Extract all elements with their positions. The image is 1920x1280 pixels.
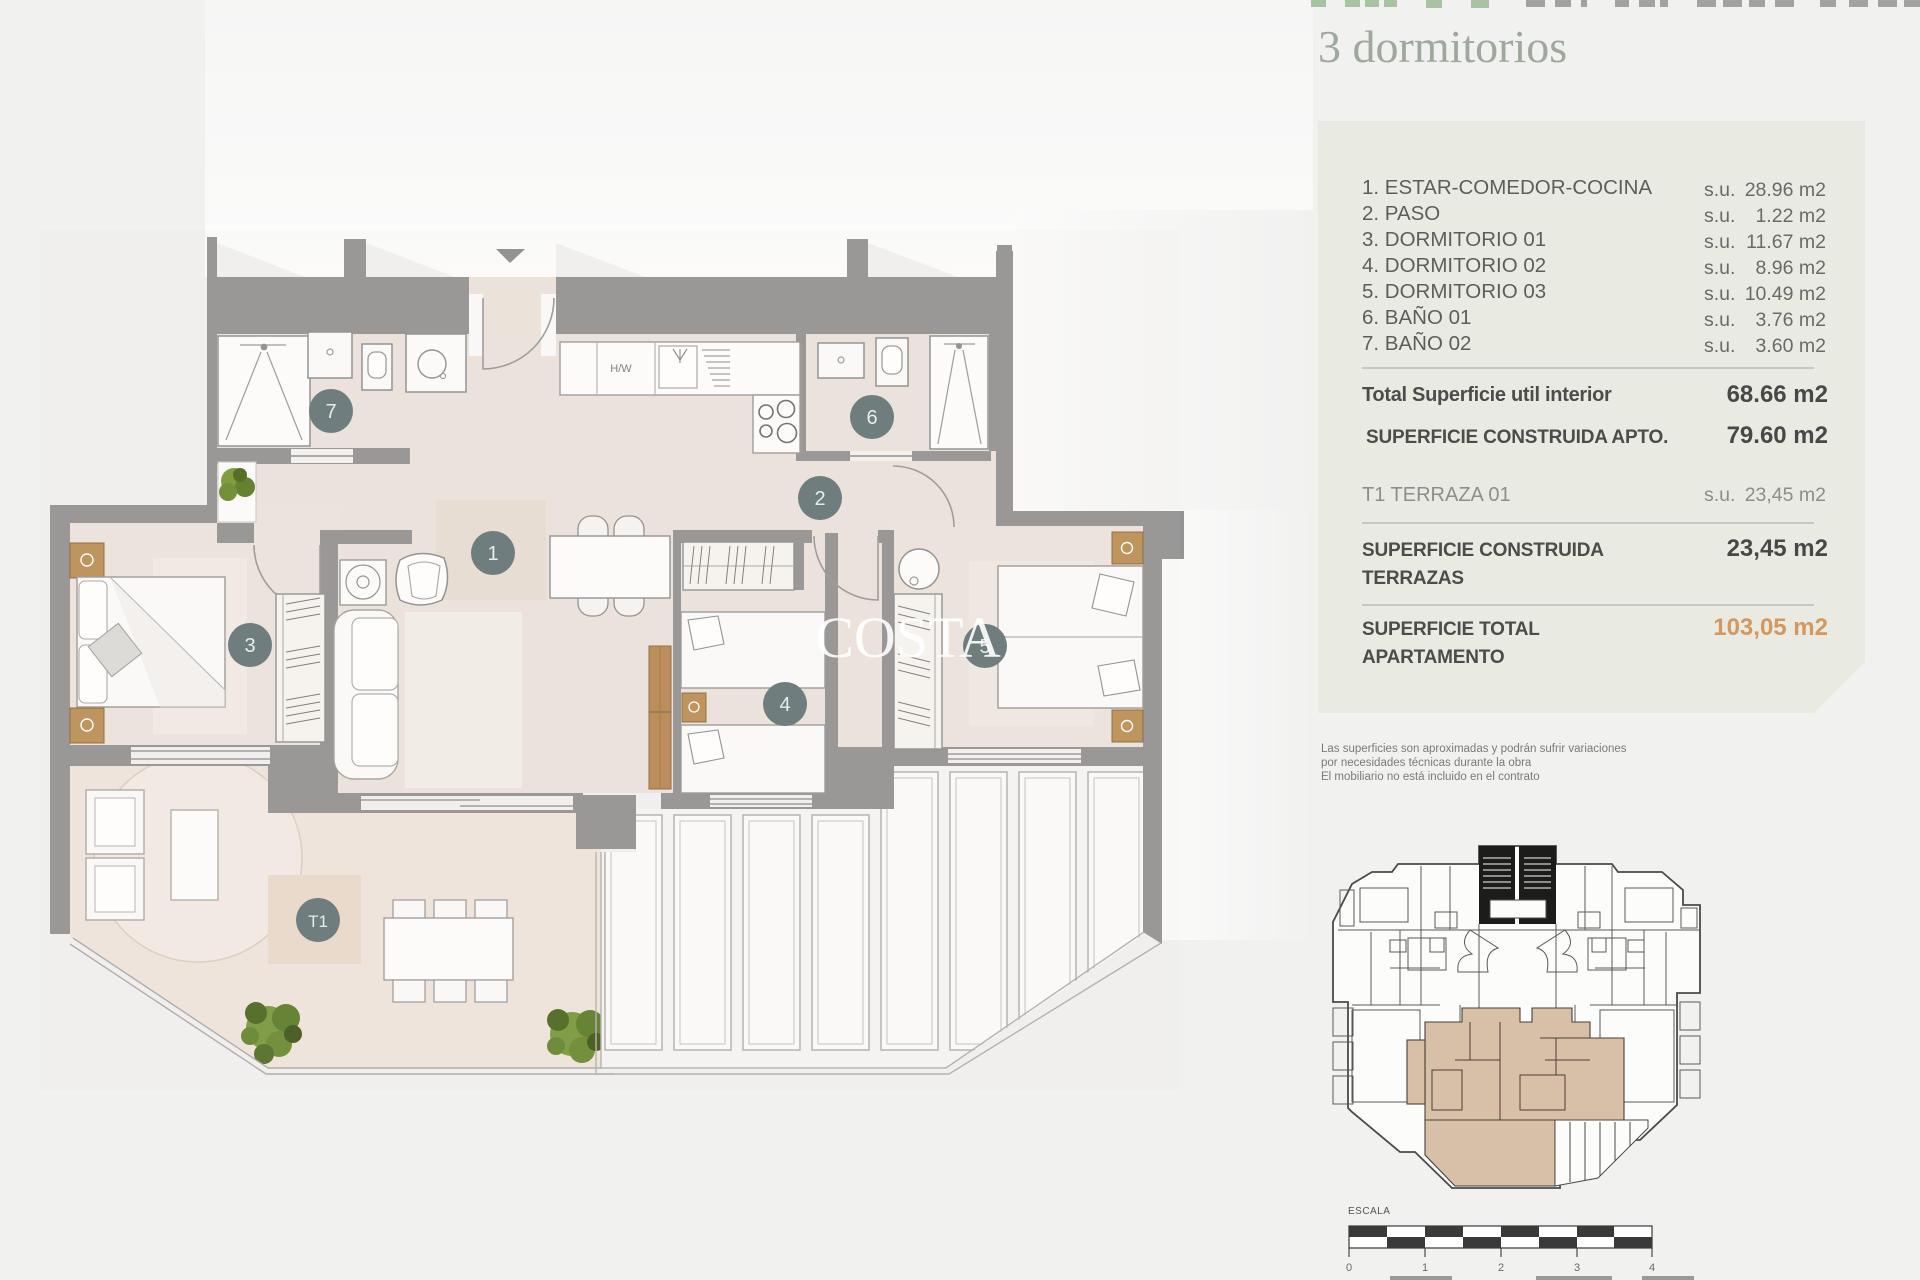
svg-text:6. BAÑO 01: 6. BAÑO 01 bbox=[1362, 306, 1471, 329]
svg-text:103,05 m2: 103,05 m2 bbox=[1713, 614, 1828, 641]
svg-text:28.96 m2: 28.96 m2 bbox=[1745, 179, 1826, 201]
svg-text:3.76 m2: 3.76 m2 bbox=[1756, 309, 1826, 331]
svg-text:6: 6 bbox=[866, 407, 877, 429]
svg-text:s.u.: s.u. bbox=[1704, 205, 1735, 227]
svg-text:por necesidades técnicas duran: por necesidades técnicas durante la obra bbox=[1321, 757, 1532, 769]
svg-text:s.u.: s.u. bbox=[1704, 231, 1735, 253]
svg-text:1: 1 bbox=[487, 543, 498, 565]
svg-text:COSTA: COSTA bbox=[815, 605, 1001, 670]
svg-text:5. DORMITORIO 03: 5. DORMITORIO 03 bbox=[1362, 280, 1546, 303]
svg-text:APARTAMENTO: APARTAMENTO bbox=[1362, 647, 1504, 668]
svg-text:68.66 m2: 68.66 m2 bbox=[1727, 381, 1828, 408]
svg-text:3 dormitorios: 3 dormitorios bbox=[1318, 21, 1567, 72]
svg-text:Total Superficie util interior: Total Superficie util interior bbox=[1362, 384, 1612, 406]
svg-text:2. PASO: 2. PASO bbox=[1362, 202, 1440, 225]
svg-text:1. ESTAR-COMEDOR-COCINA: 1. ESTAR-COMEDOR-COCINA bbox=[1362, 176, 1652, 199]
svg-text:T1 TERRAZA 01: T1 TERRAZA 01 bbox=[1362, 484, 1511, 506]
svg-text:79.60 m2: 79.60 m2 bbox=[1727, 422, 1828, 449]
svg-text:s.u.: s.u. bbox=[1704, 257, 1735, 279]
svg-text:SUPERFICIE CONSTRUIDA: SUPERFICIE CONSTRUIDA bbox=[1362, 540, 1604, 561]
svg-text:1.22 m2: 1.22 m2 bbox=[1756, 205, 1826, 227]
svg-text:SUPERFICIE CONSTRUIDA APTO.: SUPERFICIE CONSTRUIDA APTO. bbox=[1366, 427, 1668, 448]
svg-text:3: 3 bbox=[244, 635, 255, 657]
svg-text:3.60 m2: 3.60 m2 bbox=[1756, 335, 1826, 357]
svg-text:4. DORMITORIO 02: 4. DORMITORIO 02 bbox=[1362, 254, 1546, 277]
svg-text:Las superficies son aproximada: Las superficies son aproximadas y podrán… bbox=[1321, 743, 1627, 755]
svg-text:s.u.: s.u. bbox=[1704, 335, 1735, 357]
svg-text:s.u.: s.u. bbox=[1704, 283, 1735, 305]
svg-text:0: 0 bbox=[1346, 1262, 1352, 1274]
svg-text:El mobiliario no está incluido: El mobiliario no está incluido en el con… bbox=[1321, 771, 1540, 783]
svg-text:TERRAZAS: TERRAZAS bbox=[1362, 568, 1464, 589]
svg-text:1: 1 bbox=[1422, 1262, 1428, 1274]
svg-text:s.u.: s.u. bbox=[1704, 309, 1735, 331]
svg-text:3. DORMITORIO 01: 3. DORMITORIO 01 bbox=[1362, 228, 1546, 251]
svg-text:SUPERFICIE TOTAL: SUPERFICIE TOTAL bbox=[1362, 619, 1540, 640]
svg-text:7: 7 bbox=[325, 401, 336, 423]
svg-text:11.67 m2: 11.67 m2 bbox=[1746, 231, 1826, 253]
svg-text:2: 2 bbox=[814, 488, 825, 510]
svg-text:s.u.: s.u. bbox=[1704, 179, 1735, 201]
svg-text:2: 2 bbox=[1498, 1262, 1504, 1274]
svg-text:23,45 m2: 23,45 m2 bbox=[1745, 484, 1826, 506]
svg-text:4: 4 bbox=[1649, 1262, 1655, 1274]
svg-text:8.96 m2: 8.96 m2 bbox=[1756, 257, 1826, 279]
svg-text:4: 4 bbox=[779, 694, 790, 716]
svg-text:s.u.: s.u. bbox=[1704, 484, 1735, 506]
svg-text:7. BAÑO 02: 7. BAÑO 02 bbox=[1362, 332, 1471, 355]
svg-text:T1: T1 bbox=[308, 912, 328, 931]
svg-text:ESCALA: ESCALA bbox=[1348, 1206, 1390, 1217]
svg-text:23,45 m2: 23,45 m2 bbox=[1727, 535, 1828, 562]
svg-text:3: 3 bbox=[1574, 1262, 1580, 1274]
svg-text:10.49 m2: 10.49 m2 bbox=[1745, 283, 1826, 305]
